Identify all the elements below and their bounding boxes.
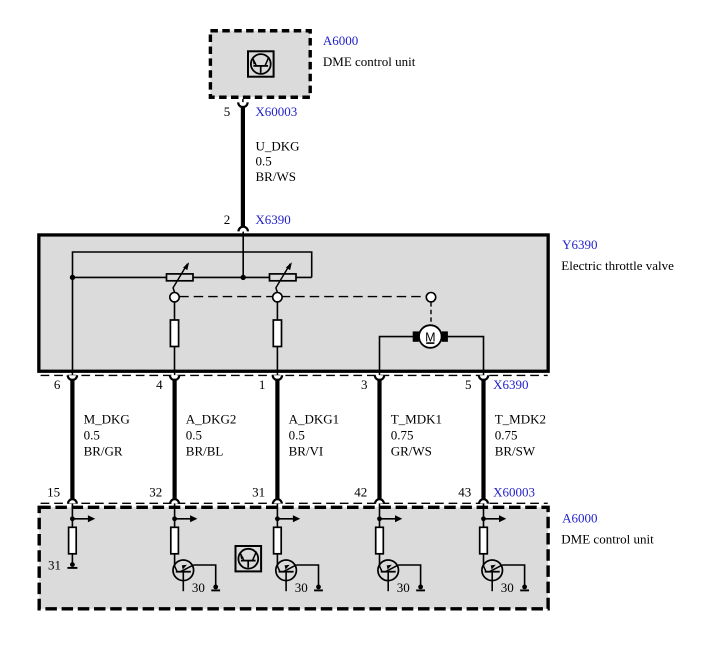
svg-text:BR/VI: BR/VI xyxy=(289,443,324,458)
svg-text:30: 30 xyxy=(397,580,410,595)
svg-text:4: 4 xyxy=(156,377,163,392)
svg-text:30: 30 xyxy=(192,580,205,595)
svg-text:3: 3 xyxy=(361,377,368,392)
svg-text:Y6390: Y6390 xyxy=(562,237,597,252)
svg-text:U_DKG: U_DKG xyxy=(256,138,300,153)
svg-text:0.5: 0.5 xyxy=(289,428,305,443)
svg-text:1: 1 xyxy=(259,377,266,392)
svg-text:DME control unit: DME control unit xyxy=(561,532,654,547)
svg-text:T_MDK1: T_MDK1 xyxy=(391,412,442,427)
svg-text:BR/BL: BR/BL xyxy=(186,443,224,458)
svg-text:42: 42 xyxy=(354,484,367,499)
svg-text:A6000: A6000 xyxy=(562,511,597,526)
svg-text:0.5: 0.5 xyxy=(186,428,202,443)
svg-text:X60003: X60003 xyxy=(255,104,297,119)
svg-text:A_DKG1: A_DKG1 xyxy=(289,412,340,427)
svg-text:0.75: 0.75 xyxy=(495,428,518,443)
svg-text:15: 15 xyxy=(47,484,60,499)
svg-text:5: 5 xyxy=(224,104,231,119)
svg-text:32: 32 xyxy=(149,484,162,499)
svg-text:2: 2 xyxy=(224,212,231,227)
svg-text:5: 5 xyxy=(465,377,472,392)
svg-text:0.5: 0.5 xyxy=(256,154,272,169)
svg-text:A6000: A6000 xyxy=(323,33,358,48)
svg-text:BR/SW: BR/SW xyxy=(495,443,536,458)
svg-text:X6390: X6390 xyxy=(493,377,528,392)
svg-text:0.5: 0.5 xyxy=(84,428,100,443)
svg-text:31: 31 xyxy=(48,557,61,572)
svg-text:M: M xyxy=(425,330,435,344)
svg-text:Electric throttle valve: Electric throttle valve xyxy=(561,258,674,273)
svg-text:DME control unit: DME control unit xyxy=(323,54,416,69)
svg-text:30: 30 xyxy=(295,580,308,595)
svg-text:GR/WS: GR/WS xyxy=(391,443,432,458)
svg-text:X6390: X6390 xyxy=(255,212,290,227)
svg-text:43: 43 xyxy=(458,484,471,499)
svg-text:30: 30 xyxy=(501,580,514,595)
svg-text:A_DKG2: A_DKG2 xyxy=(186,412,237,427)
svg-text:BR/WS: BR/WS xyxy=(256,169,296,184)
svg-text:0.75: 0.75 xyxy=(391,428,414,443)
svg-text:31: 31 xyxy=(252,484,265,499)
svg-text:T_MDK2: T_MDK2 xyxy=(495,412,546,427)
svg-text:M_DKG: M_DKG xyxy=(84,412,130,427)
svg-text:BR/GR: BR/GR xyxy=(84,443,123,458)
svg-text:X60003: X60003 xyxy=(493,484,535,499)
svg-text:6: 6 xyxy=(54,377,61,392)
